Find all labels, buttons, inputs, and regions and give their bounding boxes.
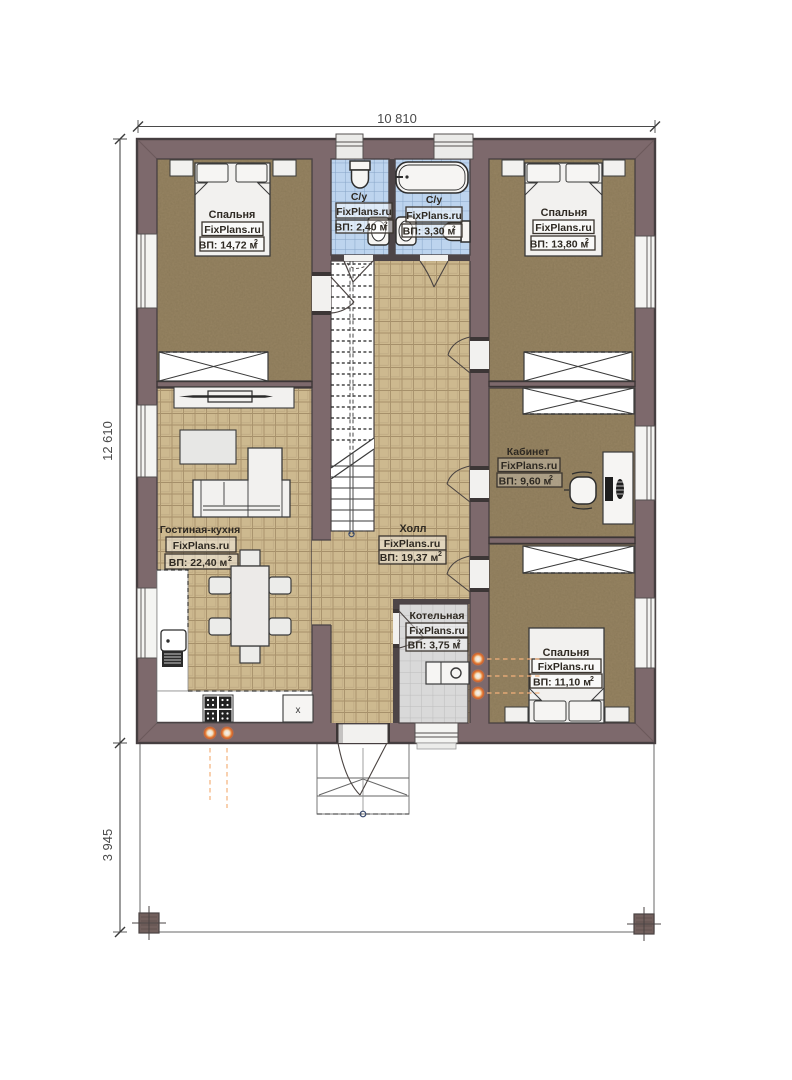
svg-text:ВП: 19,37 м: ВП: 19,37 м: [380, 552, 439, 564]
svg-text:ВП: 14,72 м: ВП: 14,72 м: [199, 240, 258, 252]
svg-text:2: 2: [585, 238, 589, 245]
svg-text:2: 2: [254, 239, 258, 246]
svg-text:2: 2: [452, 225, 456, 232]
svg-text:3 945: 3 945: [100, 829, 115, 862]
svg-text:FixPlans.ru: FixPlans.ru: [538, 661, 595, 673]
svg-text:ВП: 2,40 м: ВП: 2,40 м: [335, 222, 388, 234]
svg-text:FixPlans.ru: FixPlans.ru: [535, 222, 592, 234]
svg-text:12 610: 12 610: [100, 421, 115, 461]
svg-text:FixPlans.ru: FixPlans.ru: [173, 540, 230, 552]
svg-text:Гостиная-кухня: Гостиная-кухня: [160, 524, 240, 536]
svg-text:Кабинет: Кабинет: [507, 446, 550, 458]
svg-text:С/у: С/у: [351, 191, 368, 203]
svg-text:Спальня: Спальня: [543, 647, 590, 659]
svg-text:Котельная: Котельная: [410, 610, 465, 622]
svg-text:Спальня: Спальня: [541, 207, 588, 219]
svg-text:ВП: 9,60 м: ВП: 9,60 м: [499, 476, 552, 488]
svg-text:FixPlans.ru: FixPlans.ru: [204, 224, 261, 236]
svg-text:ВП: 11,10 м: ВП: 11,10 м: [533, 677, 591, 689]
svg-text:ВП: 13,80 м: ВП: 13,80 м: [530, 239, 589, 251]
svg-text:2: 2: [228, 556, 232, 563]
svg-text:Холл: Холл: [399, 523, 426, 535]
svg-text:FixPlans.ru: FixPlans.ru: [409, 626, 465, 637]
svg-text:FixPlans.ru: FixPlans.ru: [501, 460, 558, 472]
svg-text:FixPlans.ru: FixPlans.ru: [384, 538, 441, 550]
svg-text:х: х: [296, 705, 301, 716]
svg-text:ВП: 3,30 м: ВП: 3,30 м: [403, 226, 456, 238]
svg-text:2: 2: [590, 676, 594, 683]
svg-text:10 810: 10 810: [377, 111, 417, 126]
svg-text:FixPlans.ru: FixPlans.ru: [336, 207, 392, 218]
svg-text:FixPlans.ru: FixPlans.ru: [406, 211, 462, 222]
svg-text:2: 2: [457, 639, 461, 646]
svg-text:2: 2: [384, 221, 388, 228]
svg-text:ВП: 22,40 м: ВП: 22,40 м: [169, 557, 228, 569]
svg-text:С/у: С/у: [426, 194, 443, 206]
svg-text:ВП: 3,75 м: ВП: 3,75 м: [408, 640, 461, 652]
svg-text:Спальня: Спальня: [209, 209, 256, 221]
svg-text:2: 2: [438, 551, 442, 558]
svg-text:2: 2: [549, 475, 553, 482]
